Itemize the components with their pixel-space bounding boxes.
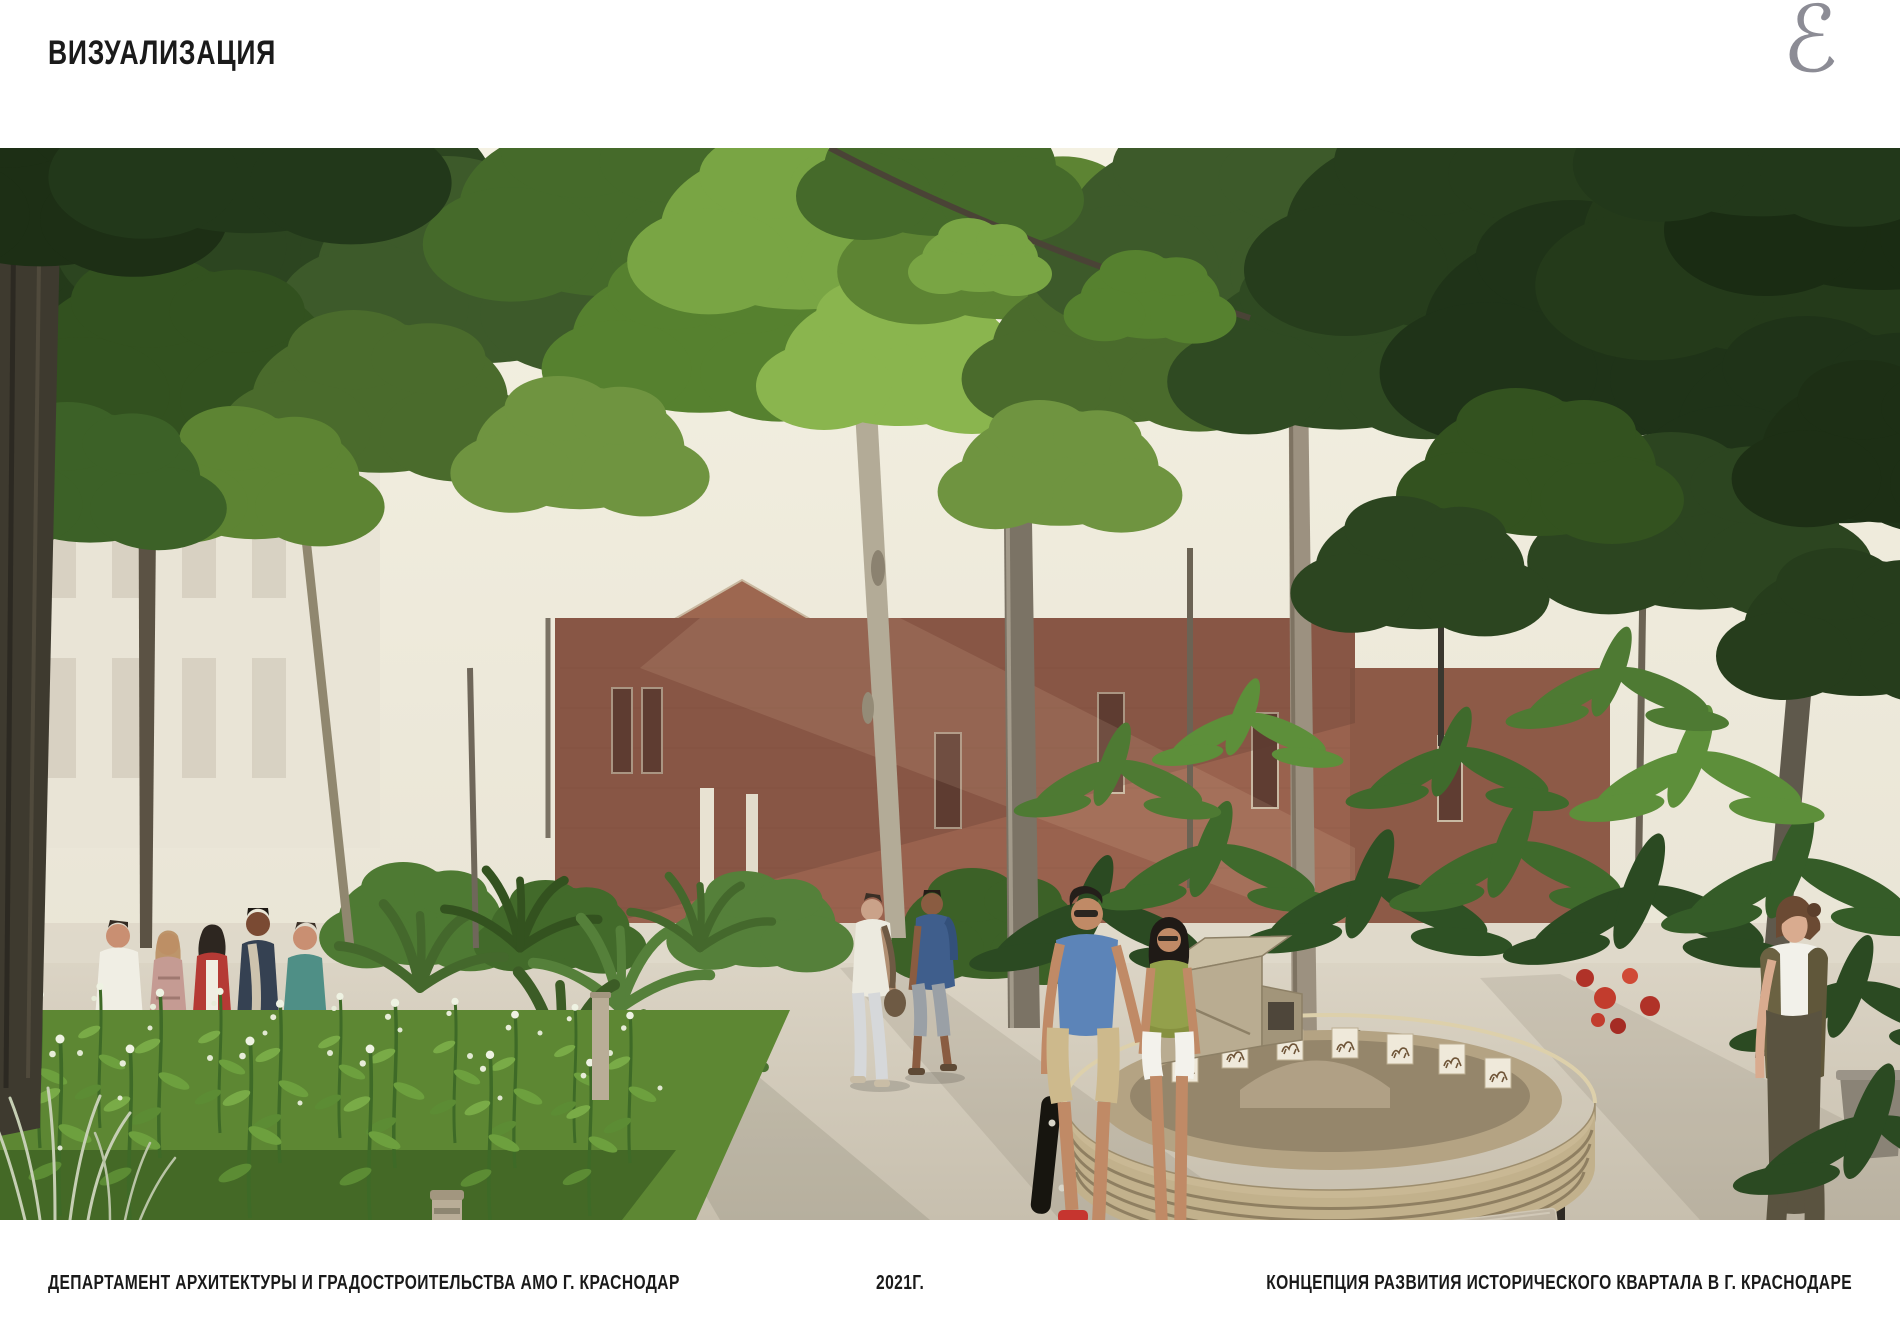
page-title: ВИЗУАЛИЗАЦИЯ <box>48 34 340 73</box>
footer-year: 2021Г. <box>876 1272 938 1295</box>
footer-project: КОНЦЕПЦИЯ РАЗВИТИЯ ИСТОРИЧЕСКОГО КВАРТАЛ… <box>1101 1272 1852 1295</box>
park-visualization-image: Живые фотографии демонстрировались в Ека… <box>0 148 1900 1220</box>
brand-logo-icon: ℰ <box>1782 0 1838 86</box>
footer-department: ДЕПАРТАМЕНТ АРХИТЕКТУРЫ И ГРАДОСТРОИТЕЛЬ… <box>48 1272 858 1295</box>
foreground-plant-field <box>0 983 790 1220</box>
